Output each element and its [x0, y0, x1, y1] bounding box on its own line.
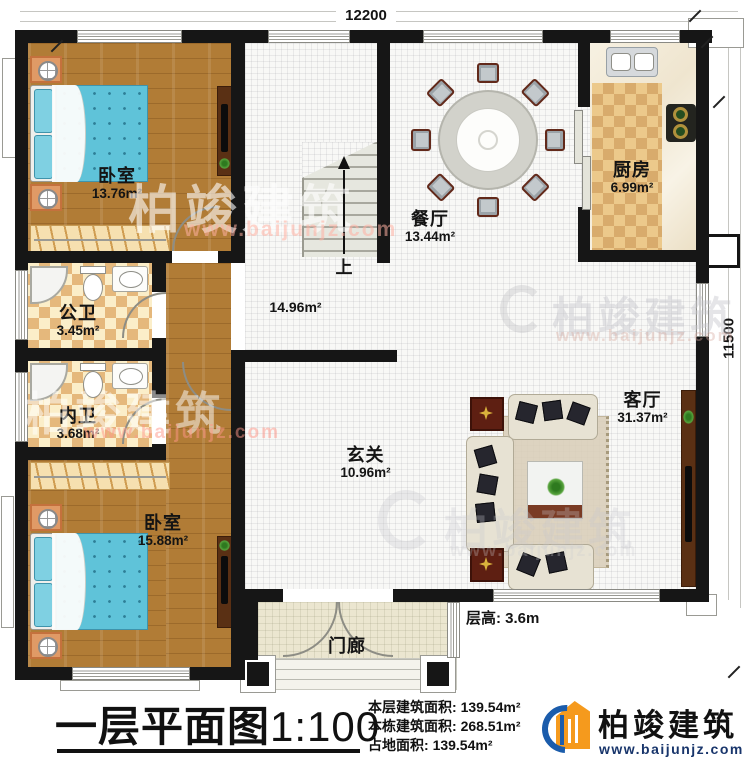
wall-segment — [152, 263, 166, 292]
room-area: 3.45m² — [38, 323, 118, 338]
toilet-tank — [80, 266, 106, 274]
room-label-foyer: 玄关 10.96m² — [318, 445, 413, 480]
sliding-door-panel — [582, 156, 591, 210]
dim-tick — [728, 666, 741, 679]
nightstand — [30, 184, 62, 211]
wardrobe-rail — [34, 476, 167, 478]
dimension-right: 11500 — [722, 308, 739, 368]
toilet-tank — [80, 363, 106, 371]
lamp-icon — [38, 509, 58, 529]
wall-segment — [578, 43, 590, 107]
title-underline — [57, 749, 360, 753]
wall-segment — [543, 30, 610, 43]
floor-height-note: 层高: 3.6m — [466, 611, 576, 628]
window — [610, 30, 680, 43]
sink-icon — [119, 271, 143, 288]
room-label-bath-private: 内卫 3.68m² — [38, 406, 118, 441]
stat-label: 占地面积: — [368, 737, 429, 753]
burner-icon — [673, 107, 688, 122]
wall-segment — [190, 667, 245, 680]
wall-segment — [231, 350, 397, 362]
dim-line-right — [740, 32, 741, 608]
stat-line: 占地面积: 139.54m² — [368, 735, 493, 755]
window — [447, 602, 460, 658]
sink-basin — [611, 53, 631, 71]
room-name: 餐厅 — [385, 209, 475, 229]
room-name: 客厅 — [600, 390, 685, 410]
sink-counter — [112, 363, 148, 389]
cushion — [566, 401, 590, 425]
stat-value: 139.54m² — [433, 737, 493, 753]
tv-icon — [221, 556, 228, 604]
toilet — [83, 274, 103, 301]
flue-box — [704, 234, 740, 268]
room-label-dining: 餐厅 13.44m² — [385, 209, 475, 244]
window — [77, 30, 182, 43]
wall-segment — [218, 251, 231, 263]
room-name: 厨房 — [592, 160, 672, 180]
cushion — [475, 502, 496, 523]
chair — [477, 197, 499, 217]
coffee-table — [527, 461, 583, 519]
porch-column — [427, 662, 449, 686]
room-area: 13.76m² — [62, 186, 172, 201]
room-name: 卧室 — [118, 513, 208, 533]
sofa — [466, 436, 514, 552]
room-label-bedroom2: 卧室 15.88m² — [118, 513, 208, 548]
sink-basin — [634, 53, 654, 71]
plant-icon — [219, 158, 230, 169]
brand-name: 柏竣建筑 — [598, 700, 738, 745]
brand-logo-icon — [542, 699, 596, 757]
plan-scale: 1:100 — [270, 703, 380, 750]
dim-tick — [713, 96, 726, 109]
chair — [477, 63, 499, 83]
room-area: 13.44m² — [385, 229, 475, 244]
kitchen-sink — [606, 47, 658, 77]
plan-title: 一层平面图1:100 — [55, 693, 380, 754]
wall-segment — [696, 30, 709, 283]
room-name: 公卫 — [38, 303, 118, 323]
nightstand — [30, 504, 62, 531]
hall-area-label: 14.96m² — [258, 300, 333, 316]
room-area: 10.96m² — [318, 465, 413, 480]
window — [696, 283, 709, 337]
logo-swoosh-icon — [532, 695, 600, 763]
room-area: 6.99m² — [592, 180, 672, 195]
room-label-living: 客厅 31.37m² — [600, 390, 685, 425]
wall-segment — [15, 447, 166, 460]
room-name: 玄关 — [318, 445, 413, 465]
dining-table-center — [478, 130, 498, 150]
cushion — [542, 400, 563, 421]
tv-icon — [685, 466, 692, 542]
wall-segment — [696, 337, 709, 602]
cushion — [545, 551, 568, 574]
wall-segment — [152, 338, 166, 398]
window — [268, 30, 350, 43]
sofa — [508, 394, 598, 440]
room-label-bedroom1: 卧室 13.76m² — [62, 166, 172, 201]
wall-segment — [460, 589, 493, 602]
stat-label: 本栋建筑面积: — [368, 718, 457, 734]
stove — [666, 104, 696, 142]
sink-icon — [119, 368, 143, 385]
lamp-icon — [38, 637, 58, 657]
stairs-arrow-head — [338, 156, 350, 169]
window — [493, 589, 660, 602]
wall-segment — [182, 30, 268, 43]
stat-line: 本层建筑面积: 139.54m² — [368, 697, 521, 717]
porch-column — [247, 662, 269, 686]
lamp-icon — [38, 189, 58, 209]
plant-icon — [219, 540, 230, 551]
room-label-kitchen: 厨房 6.99m² — [592, 160, 672, 195]
room-area: 31.37m² — [600, 410, 685, 425]
room-name: 卧室 — [62, 166, 172, 186]
pillow — [34, 537, 53, 581]
chair — [411, 129, 431, 151]
stat-line: 本栋建筑面积: 268.51m² — [368, 716, 521, 736]
room-name: 内卫 — [38, 406, 118, 426]
dimension-top: 12200 — [336, 8, 396, 25]
lamp-icon — [38, 61, 58, 81]
wall-segment — [15, 442, 28, 680]
wall-segment — [393, 589, 460, 602]
cushion — [515, 401, 538, 424]
stat-value: 268.51m² — [461, 718, 521, 734]
room-name: 门廊 — [312, 636, 382, 656]
room-label-porch: 门廊 — [312, 636, 382, 656]
window — [15, 372, 28, 442]
wall-segment — [15, 348, 166, 361]
cushion — [476, 473, 498, 495]
cushion — [516, 552, 541, 577]
wall-segment — [28, 251, 172, 263]
wall-segment — [15, 30, 28, 270]
window — [423, 30, 543, 43]
side-table — [470, 548, 504, 582]
wall-segment — [660, 589, 709, 602]
sofa — [508, 544, 594, 590]
wardrobe — [30, 225, 170, 252]
room-label-bath-public: 公卫 3.45m² — [38, 303, 118, 338]
wall-segment — [578, 250, 709, 262]
wall-segment — [231, 43, 245, 263]
wall-segment — [350, 30, 423, 43]
stairs-arrow — [343, 170, 345, 254]
compass-icon — [479, 406, 493, 420]
side-table — [470, 397, 504, 431]
wall-segment — [245, 589, 283, 602]
cushion — [474, 445, 498, 469]
stat-value: 139.54m² — [461, 699, 521, 715]
sink-counter — [112, 266, 148, 292]
chair — [545, 129, 565, 151]
compass-icon — [479, 557, 493, 571]
pillow — [34, 89, 53, 133]
floor-plan: 12200 11500 上 — [0, 0, 750, 767]
window-sill — [1, 496, 14, 628]
room-area: 3.68m² — [38, 426, 118, 441]
wall-segment — [15, 667, 72, 680]
stat-label: 本层建筑面积: — [368, 699, 457, 715]
window-sill — [60, 680, 200, 691]
tv-icon — [221, 104, 228, 152]
nightstand — [30, 632, 62, 659]
window — [72, 667, 190, 680]
wardrobe — [30, 462, 170, 490]
window — [15, 270, 28, 340]
plant-icon — [547, 478, 565, 496]
pillow — [34, 583, 53, 627]
burner-icon — [673, 124, 688, 139]
toilet — [83, 371, 103, 398]
wardrobe-rail — [34, 239, 167, 241]
coffee-table-shelf — [528, 505, 582, 518]
brand-url: www.baijunjz.com — [599, 741, 744, 757]
plan-title-text: 一层平面图 — [55, 703, 270, 750]
wall-segment — [231, 362, 245, 667]
wall-segment — [578, 207, 590, 252]
nightstand — [30, 56, 62, 83]
bed-blanket — [52, 533, 86, 630]
pillow — [34, 135, 53, 179]
stairs-up-label: 上 — [330, 258, 358, 277]
room-area: 15.88m² — [118, 533, 208, 548]
